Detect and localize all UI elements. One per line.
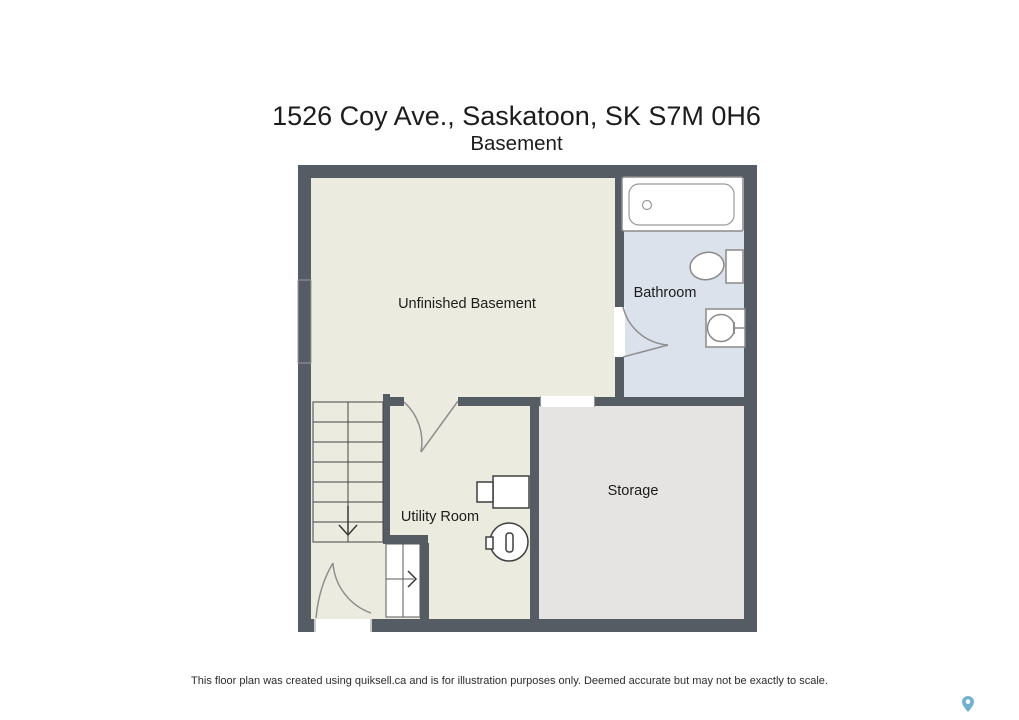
entry-door-opening <box>314 619 372 632</box>
disclaimer-text: This floor plan was created using quikse… <box>0 675 1019 687</box>
wall-closet-right <box>420 543 429 620</box>
room-storage <box>538 397 744 619</box>
wall-left <box>298 165 311 632</box>
wall-utility-storage <box>530 397 539 619</box>
wall-closet-cap <box>383 535 428 544</box>
wall-right <box>744 165 757 632</box>
wall-utility-top-left <box>388 397 404 406</box>
room-unfinished-basement <box>311 178 623 405</box>
wall-storage-top <box>595 397 744 406</box>
label-bathroom: Bathroom <box>634 285 697 301</box>
sink-icon <box>706 309 745 347</box>
label-storage: Storage <box>608 483 659 499</box>
bathroom-door-opening <box>614 307 625 357</box>
cased-opening-basement-storage <box>540 396 595 407</box>
wall-stair-side <box>383 394 390 537</box>
wall-top <box>298 165 757 178</box>
map-pin-icon <box>962 696 974 712</box>
label-unfinished-basement: Unfinished Basement <box>398 296 536 312</box>
closet-stairs <box>386 544 420 617</box>
label-utility-room: Utility Room <box>401 509 479 525</box>
bathtub-icon <box>622 177 743 231</box>
wall-utility-top-right <box>458 397 530 406</box>
floorplan-diagram: Unfinished Basement Bathroom Storage Uti… <box>0 0 1019 720</box>
